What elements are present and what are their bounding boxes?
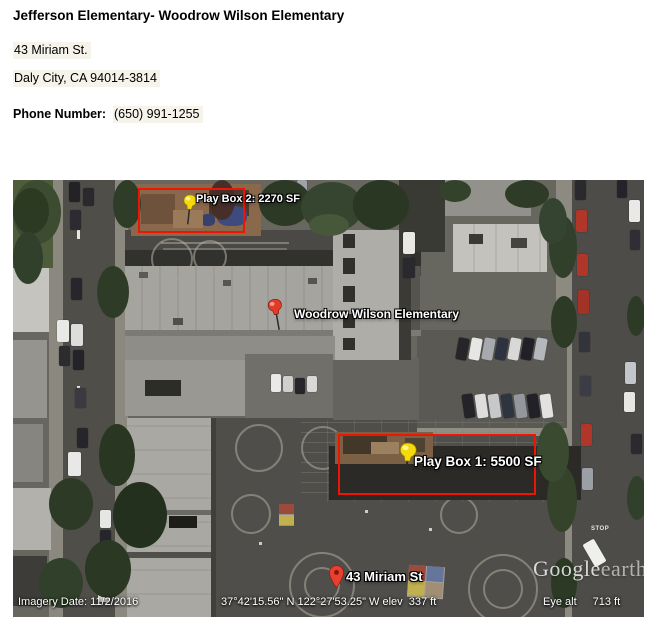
satellite-map[interactable]: STOP Play Box 2: 2270 SF Woodrow Wilson …: [13, 180, 644, 617]
car: [71, 324, 83, 346]
eye-alt-value: 713 ft: [593, 596, 621, 608]
address-line-2: Daly City, CA 94014-3814: [13, 71, 160, 85]
car: [83, 188, 94, 206]
car: [582, 468, 593, 490]
phone-line: Phone Number: (650) 991-1255: [13, 107, 203, 121]
skylight: [343, 258, 355, 274]
tree-canopy: [113, 482, 167, 548]
car: [575, 180, 586, 200]
playground-circle-marking: [483, 569, 523, 609]
wavy-line-marking: [161, 242, 289, 244]
car: [617, 180, 627, 198]
car: [100, 510, 111, 528]
road-arrow-marking: [77, 230, 80, 239]
address-marker-label[interactable]: 43 Miriam St: [346, 569, 423, 584]
courtyard: [333, 358, 419, 420]
coordinates-readout: 37°42'15.56" N 122°27'53.25" W elev 337 …: [221, 596, 436, 608]
car: [578, 290, 589, 314]
address-line-1: 43 Miriam St.: [13, 43, 91, 57]
eye-alt-label: Eye alt: [543, 596, 577, 608]
car: [295, 378, 305, 394]
car: [59, 346, 70, 366]
building-roof: [13, 340, 47, 418]
car: [70, 210, 81, 230]
car: [75, 388, 86, 408]
car: [631, 434, 642, 454]
tree-canopy: [85, 540, 131, 598]
roof-vent: [169, 516, 197, 528]
building-roof: [453, 224, 547, 272]
tree-canopy: [439, 180, 471, 202]
tree-canopy: [13, 232, 43, 284]
car: [283, 376, 293, 392]
paint-dot: [259, 542, 262, 545]
car: [630, 230, 640, 250]
car: [580, 376, 591, 396]
playground-circle-marking: [193, 240, 227, 274]
phone-label: Phone Number:: [13, 107, 106, 121]
car: [579, 332, 590, 352]
tree-canopy: [627, 476, 644, 520]
roof-vent: [173, 318, 183, 325]
tree-canopy: [539, 198, 567, 244]
car: [71, 278, 82, 300]
building-roof: [13, 488, 51, 550]
roof-seam: [127, 552, 215, 558]
car: [403, 258, 415, 278]
phone-value: (650) 991-1255: [113, 106, 202, 123]
playground-circle-marking: [151, 238, 193, 280]
watermark-product: earth: [601, 556, 644, 581]
imagery-date: Imagery Date: 11/2/2016: [18, 596, 138, 608]
two-color-court-marking: [279, 504, 294, 526]
car: [576, 210, 587, 232]
tree-canopy: [627, 296, 644, 336]
tree-canopy: [97, 266, 129, 318]
report-page: Jefferson Elementary- Woodrow Wilson Ele…: [0, 0, 657, 629]
roof-vent: [223, 280, 231, 286]
car: [57, 320, 69, 342]
paint-dot: [429, 528, 432, 531]
car: [307, 376, 317, 392]
roof-vent: [145, 380, 181, 396]
skylight: [343, 234, 355, 248]
playground-circle-marking: [440, 496, 478, 534]
car: [73, 350, 84, 370]
tree-canopy: [537, 422, 569, 482]
roof-vent: [469, 234, 483, 244]
car: [625, 362, 636, 384]
car: [577, 254, 588, 276]
tree-canopy: [99, 424, 135, 486]
roof-edge: [211, 418, 216, 617]
court-pane: [426, 566, 444, 582]
car: [403, 232, 415, 254]
play-box-1-label[interactable]: Play Box 1: 5500 SF: [414, 454, 542, 469]
car: [581, 424, 592, 446]
watermark-brand: Google: [533, 556, 601, 581]
stop-road-marking: STOP: [591, 526, 609, 532]
roof-vent: [308, 278, 317, 284]
car: [624, 392, 635, 412]
building-roof: [125, 360, 245, 416]
roof-vent: [139, 272, 148, 278]
google-earth-watermark: Googleearth: [533, 556, 644, 582]
car: [69, 182, 80, 202]
playground-circle-marking: [235, 424, 283, 472]
skylight: [343, 286, 355, 302]
tree-canopy: [309, 214, 349, 236]
roof-vent: [511, 238, 527, 248]
paint-dot: [365, 510, 368, 513]
car: [77, 428, 88, 448]
page-title: Jefferson Elementary- Woodrow Wilson Ele…: [13, 8, 344, 23]
school-label[interactable]: Woodrow Wilson Elementary: [294, 307, 459, 321]
tree-canopy: [113, 180, 141, 228]
car: [629, 200, 640, 222]
building-roof: [13, 424, 43, 482]
wavy-line-marking: [163, 248, 287, 250]
tree-canopy: [49, 478, 93, 530]
car: [271, 374, 281, 392]
red-map-marker-icon[interactable]: [328, 564, 345, 595]
eye-altitude-readout: Eye alt713 ft: [543, 596, 620, 608]
school-main-roof: [125, 266, 335, 334]
car: [68, 452, 81, 476]
court-pane: [279, 504, 294, 514]
tree-canopy: [13, 188, 49, 234]
tree-canopy: [353, 180, 409, 230]
tree-canopy: [551, 296, 577, 348]
play-box-2-label[interactable]: Play Box 2: 2270 SF: [196, 193, 300, 205]
court-pane: [279, 515, 294, 525]
skylight: [343, 338, 355, 350]
playground-circle-marking: [231, 494, 271, 534]
